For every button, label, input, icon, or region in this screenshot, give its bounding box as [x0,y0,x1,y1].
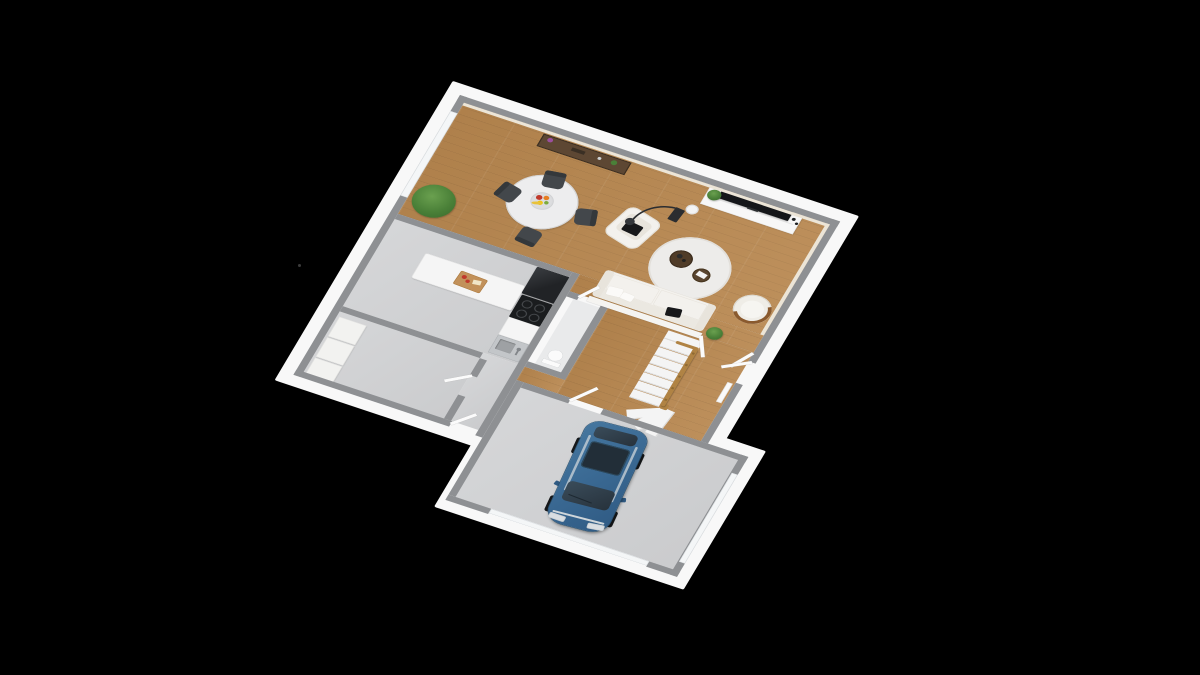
magazine [695,271,707,280]
burner [527,312,542,323]
console-decor [571,147,586,154]
burner [514,308,529,319]
console-cup [597,157,602,161]
screenshot-stage [0,0,1200,675]
tomato [465,279,471,284]
cheese [472,280,482,286]
coffee-table-cup [681,259,686,263]
dining-chair [573,208,598,227]
sink-basin [495,339,516,354]
faucet-spout [515,350,519,355]
render-artifact-dot [298,264,301,267]
fruit-banana [531,201,542,205]
car-wiper [568,494,592,504]
console-plant [610,160,619,166]
flower-vase [546,137,554,143]
cutting-board [453,270,489,293]
fruit-lime [543,201,549,205]
burner [520,299,535,310]
burner [532,303,547,314]
